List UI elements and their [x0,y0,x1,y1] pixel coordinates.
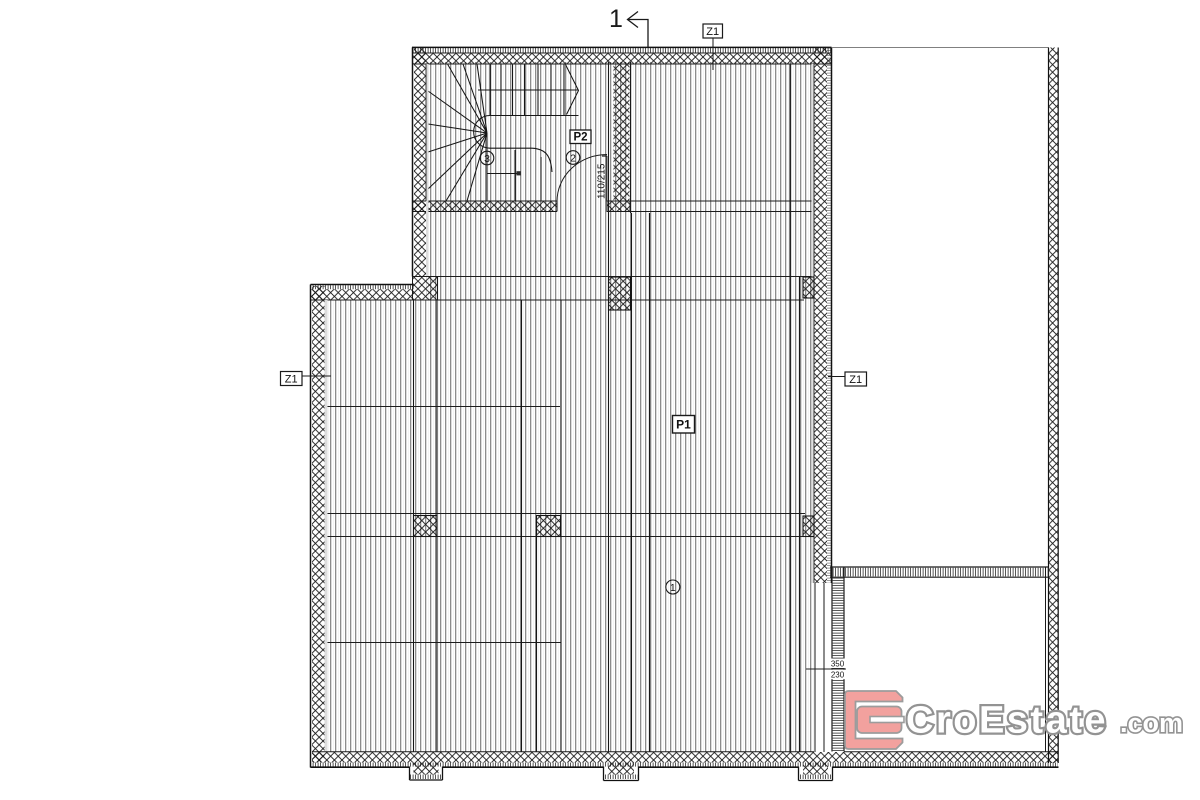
svg-text:CroEstate: CroEstate [906,700,1108,742]
svg-text:230: 230 [831,671,845,680]
svg-text:P2: P2 [573,132,587,144]
svg-text:2: 2 [570,153,576,165]
svg-text:P1: P1 [676,418,691,432]
svg-text:.com: .com [1120,708,1183,738]
svg-text:3: 3 [484,153,490,165]
svg-text:110/215: 110/215 [597,163,608,199]
svg-text:1: 1 [609,5,623,33]
svg-text:1: 1 [670,582,676,594]
svg-text:Z1: Z1 [849,374,862,386]
svg-text:Z1: Z1 [706,26,719,38]
svg-text:350: 350 [831,660,845,669]
svg-text:Z1: Z1 [285,374,298,386]
